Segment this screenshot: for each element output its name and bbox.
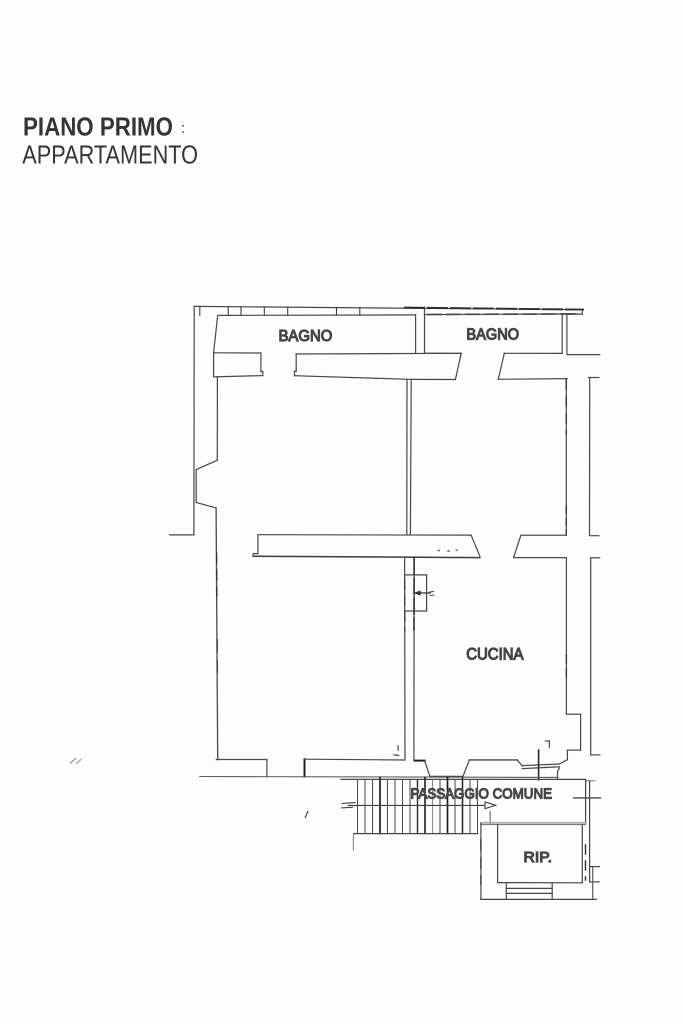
svg-text:BAGNO: BAGNO (279, 328, 333, 345)
svg-text:APPARTAMENTO: APPARTAMENTO (22, 140, 198, 170)
svg-text::: : (181, 120, 185, 137)
svg-text:RIP.: RIP. (524, 849, 553, 866)
svg-text:PIANO PRIMO: PIANO PRIMO (23, 112, 173, 142)
svg-text:CUCINA: CUCINA (466, 645, 523, 663)
svg-text:BAGNO: BAGNO (466, 327, 519, 344)
svg-text:PASSAGGIO COMUNE: PASSAGGIO COMUNE (411, 786, 553, 803)
